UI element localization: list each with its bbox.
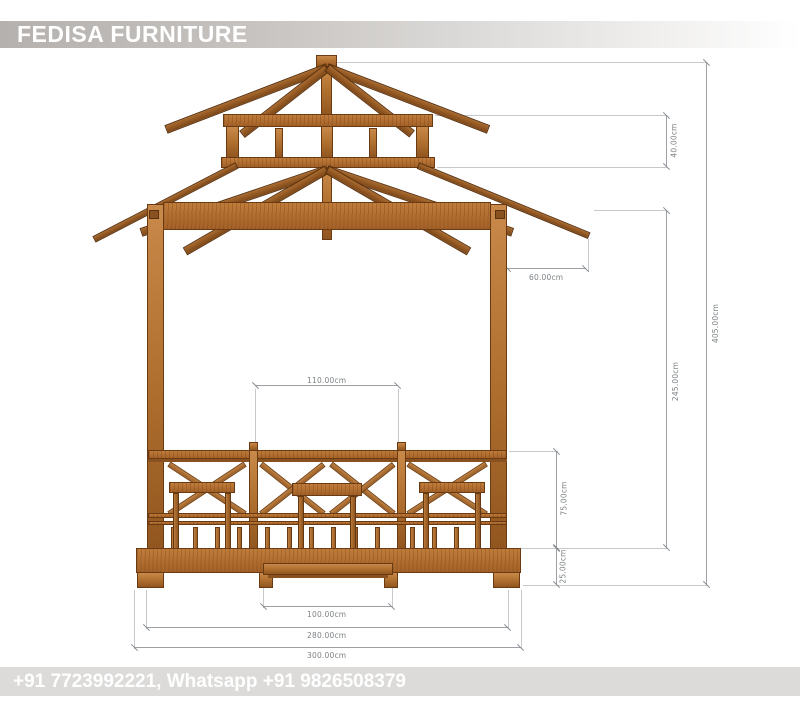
- baluster: [432, 527, 437, 550]
- baluster: [309, 527, 314, 550]
- dim-line-interior-height: [666, 210, 667, 548]
- post-cap-ornament: [495, 210, 505, 219]
- baluster: [287, 527, 292, 550]
- extension-line: [509, 548, 667, 549]
- contact-info: +91 7723992221, Whatsapp +91 9826508379: [0, 667, 800, 696]
- front-step: [263, 563, 393, 575]
- dim-label-step-width: 100.00cm: [307, 610, 346, 619]
- baluster: [375, 527, 380, 550]
- bench-right: [419, 482, 485, 493]
- baluster: [193, 527, 198, 550]
- baluster: [410, 527, 415, 550]
- extension-line: [134, 590, 135, 649]
- clerestory-post: [321, 126, 333, 158]
- front-step-shadow: [268, 575, 388, 578]
- bench-leg: [225, 493, 231, 550]
- extension-line: [594, 210, 667, 211]
- baluster: [237, 527, 242, 550]
- extension-line: [521, 590, 522, 649]
- table-leg: [350, 496, 356, 550]
- post-left: [147, 204, 164, 552]
- platform-foot: [137, 572, 164, 588]
- drawing-canvas: 40.00cm 405.00cm 245.00cm 75.00cm 25.00c…: [0, 0, 800, 703]
- clerestory-post: [226, 126, 239, 158]
- baluster: [215, 527, 220, 550]
- footer-banner: +91 7723992221, Whatsapp +91 9826508379: [0, 667, 800, 696]
- eave-beam: [163, 202, 491, 230]
- dim-label-railing-height: 75.00cm: [560, 481, 569, 515]
- extension-line: [146, 590, 147, 629]
- platform-foot: [493, 572, 520, 588]
- bench-leg: [423, 493, 429, 550]
- table-leg: [298, 496, 304, 550]
- rafter: [239, 64, 330, 138]
- dim-line-roof-overhang: [507, 268, 586, 269]
- dim-label-plinth-height: 25.00cm: [559, 549, 568, 583]
- bench-leg: [173, 493, 179, 550]
- baluster: [265, 527, 270, 550]
- baluster: [454, 527, 459, 550]
- dim-line-plinth-height: [556, 548, 557, 585]
- extension-line: [437, 167, 667, 168]
- dim-line-overall-width: [134, 647, 521, 648]
- clerestory-mullion: [275, 128, 283, 158]
- table: [292, 483, 362, 496]
- extension-line: [588, 239, 589, 272]
- post-cap-ornament: [149, 210, 159, 219]
- dim-label-clerestory-height: 40.00cm: [670, 123, 679, 157]
- dim-label-interior-height: 245.00cm: [671, 362, 680, 401]
- railing-top-rail: [148, 450, 507, 459]
- extension-line: [337, 62, 707, 63]
- railing-top-rail-shadow: [148, 459, 507, 462]
- extension-line: [523, 585, 707, 586]
- dim-line-center-opening: [255, 385, 398, 386]
- dim-label-roof-overhang: 60.00cm: [529, 273, 563, 282]
- clerestory-mullion: [369, 128, 377, 158]
- extension-line: [509, 451, 558, 452]
- railing-mid-rail: [148, 521, 507, 525]
- dim-label-post-span: 280.00cm: [307, 631, 346, 640]
- dim-label-overall-width: 300.00cm: [307, 651, 346, 660]
- dim-line-post-span: [146, 627, 508, 628]
- extension-line: [508, 590, 509, 629]
- dim-label-center-opening: 110.00cm: [307, 376, 346, 385]
- dim-line-step-width: [263, 606, 392, 607]
- extension-line: [398, 389, 399, 446]
- extension-line: [255, 389, 256, 446]
- railing-bay-post: [397, 450, 406, 550]
- dim-label-overall-height: 405.00cm: [711, 304, 720, 343]
- extension-line: [435, 115, 667, 116]
- clerestory-post: [416, 126, 429, 158]
- header-banner: FEDISA FURNITURE: [0, 21, 800, 48]
- dim-line-railing-height: [556, 451, 557, 548]
- baluster: [331, 527, 336, 550]
- dim-line-clerestory-height: [666, 115, 667, 167]
- brand-title: FEDISA FURNITURE: [0, 21, 800, 48]
- bench-left: [169, 482, 235, 493]
- dim-line-overall-height: [706, 62, 707, 585]
- post-right: [490, 204, 507, 552]
- bench-leg: [475, 493, 481, 550]
- railing-bay-post: [249, 450, 258, 550]
- railing-mid-rail: [148, 513, 507, 518]
